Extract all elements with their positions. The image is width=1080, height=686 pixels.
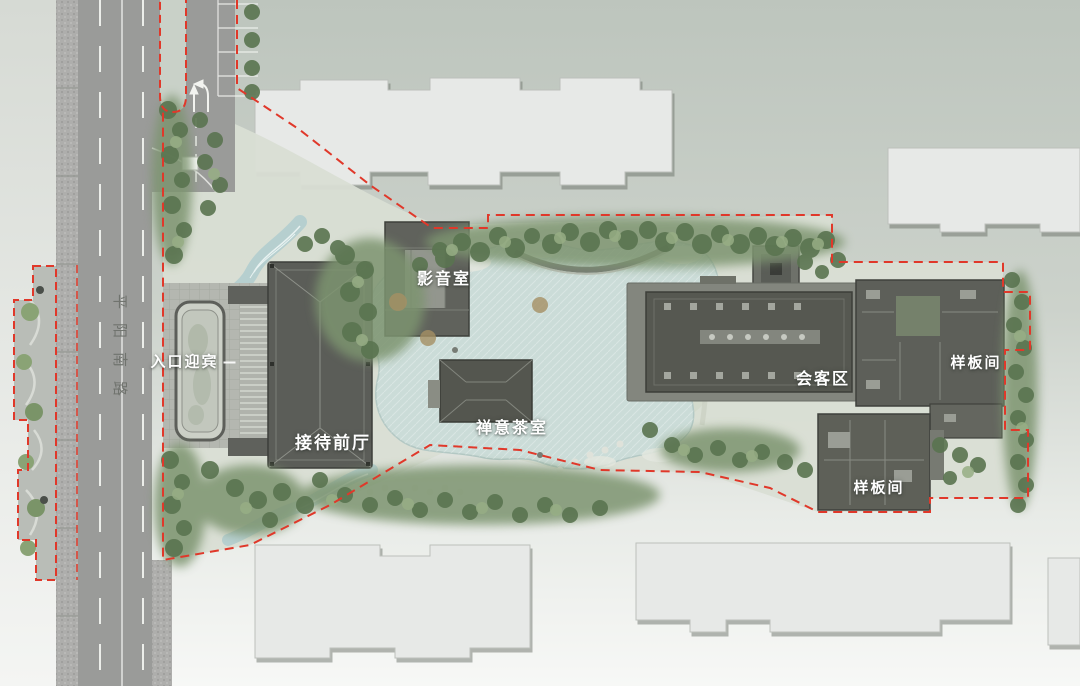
- label-tea-room: 禅意茶室: [476, 414, 548, 438]
- label-lounge: 会客区: [796, 365, 850, 389]
- label-reception-hall: 接待前厅: [295, 429, 371, 454]
- tea-room-building: [428, 360, 532, 422]
- sidewalk-west: [56, 0, 78, 686]
- site-plan-graphics: [0, 0, 1080, 686]
- entry-steps: [240, 300, 268, 442]
- label-entrance: 入口迎宾: [150, 351, 235, 372]
- label-entrance-text: 入口迎宾: [150, 353, 218, 371]
- building-top-right: [888, 148, 1080, 232]
- site-plan: 入口迎宾 接待前厅 影音室 禅意茶室 会客区 样板间 样板间 平阳南路: [0, 0, 1080, 686]
- label-leader-line: [224, 361, 236, 363]
- label-av-room: 影音室: [417, 265, 471, 289]
- gate-roof-south: [228, 438, 268, 456]
- sidewalk-east-south: [152, 560, 172, 686]
- label-model-room-south: 样板间: [853, 477, 904, 498]
- road-name-label: 平阳南路: [110, 294, 131, 410]
- label-model-room-east: 样板间: [950, 352, 1001, 373]
- building-bottom-left: [255, 545, 530, 658]
- gate-roof-north: [228, 286, 268, 304]
- building-bottom-right: [636, 543, 1010, 632]
- building-bottom-far-right: [1048, 558, 1080, 645]
